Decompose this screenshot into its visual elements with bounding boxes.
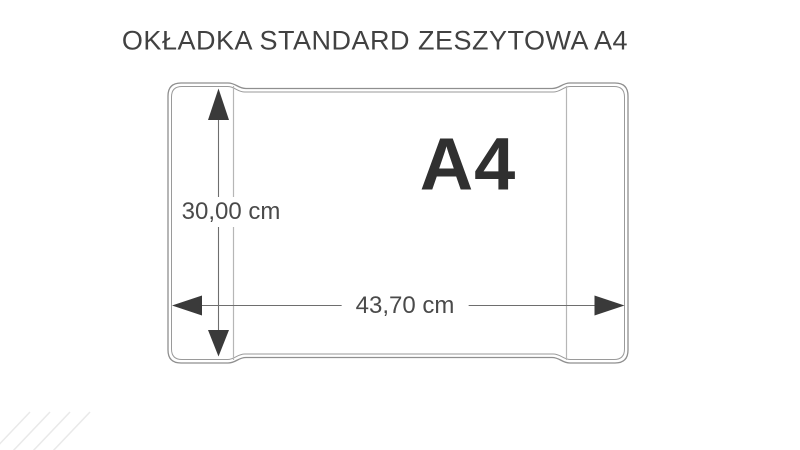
arrow-left-icon	[172, 296, 202, 316]
width-dimension-label: 43,70 cm	[342, 291, 469, 321]
corner-stripes-decoration	[0, 412, 90, 450]
arrow-down-icon	[208, 330, 229, 357]
arrow-up-icon	[208, 89, 229, 121]
format-label: A4	[420, 122, 517, 207]
arrow-right-icon	[595, 296, 625, 316]
product-dimension-diagram: OKŁADKA STANDARD ZESZYTOWA A4 3	[0, 0, 800, 450]
height-dimension-label: 30,00 cm	[173, 197, 290, 227]
cover-diagram-svg	[0, 0, 800, 450]
